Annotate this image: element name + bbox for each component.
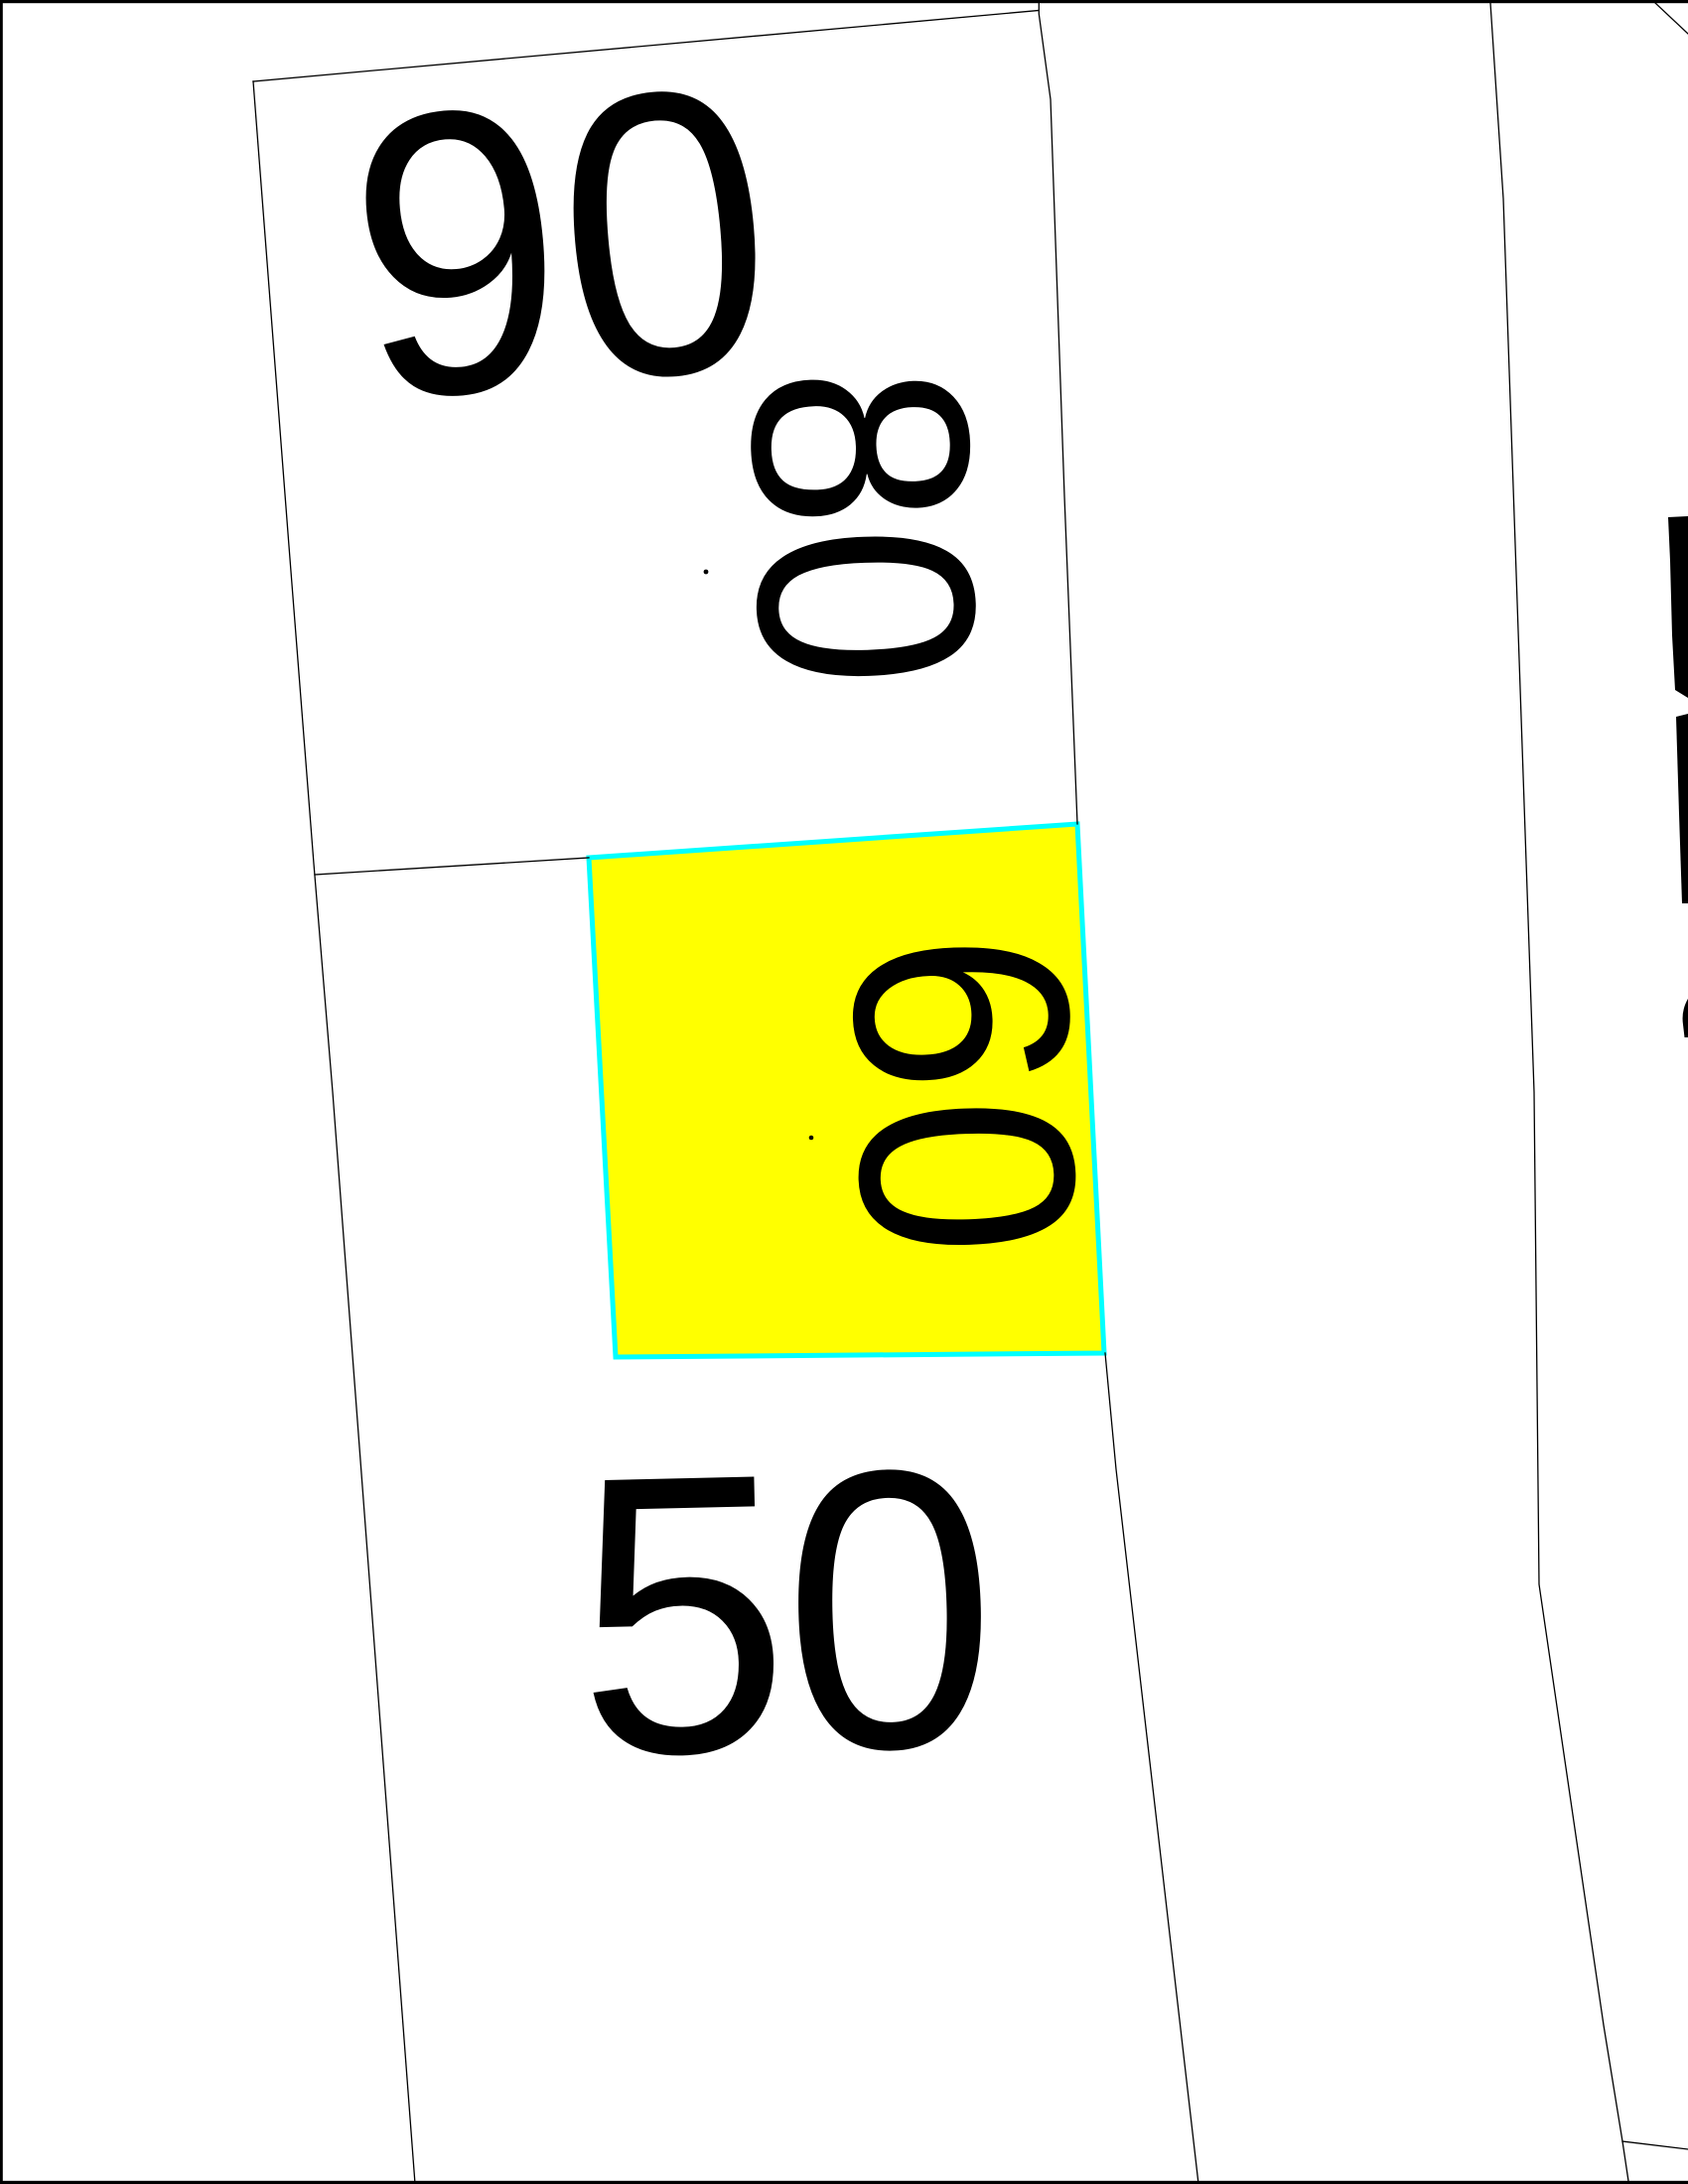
svg-text:50: 50 [571, 1386, 1000, 1839]
svg-text:80: 80 [685, 359, 1042, 693]
